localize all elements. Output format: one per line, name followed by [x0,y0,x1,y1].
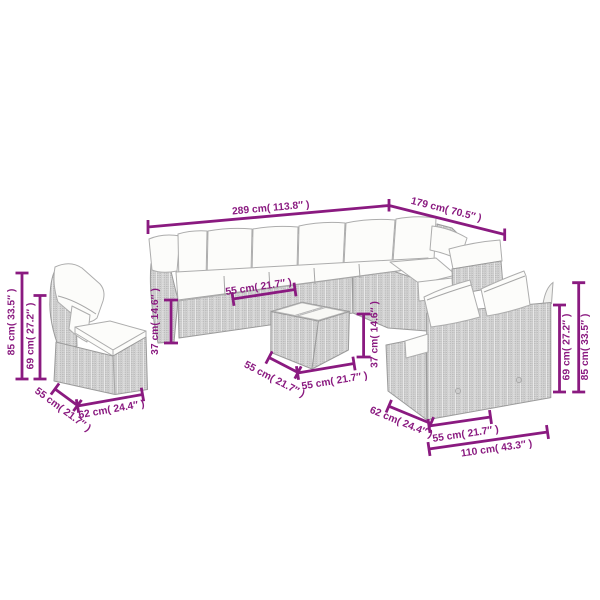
svg-text:85 cm( 33.5″ ): 85 cm( 33.5″ ) [580,314,591,381]
svg-text:37 cm( 14.6″ ): 37 cm( 14.6″ ) [370,301,381,368]
svg-text:69 cm( 27.2″ ): 69 cm( 27.2″ ) [562,314,573,381]
svg-text:37 cm( 14.6″ ): 37 cm( 14.6″ ) [150,288,161,355]
svg-text:69 cm( 27.2″ ): 69 cm( 27.2″ ) [26,303,37,370]
svg-text:85 cm( 33.5″ ): 85 cm( 33.5″ ) [7,289,18,356]
